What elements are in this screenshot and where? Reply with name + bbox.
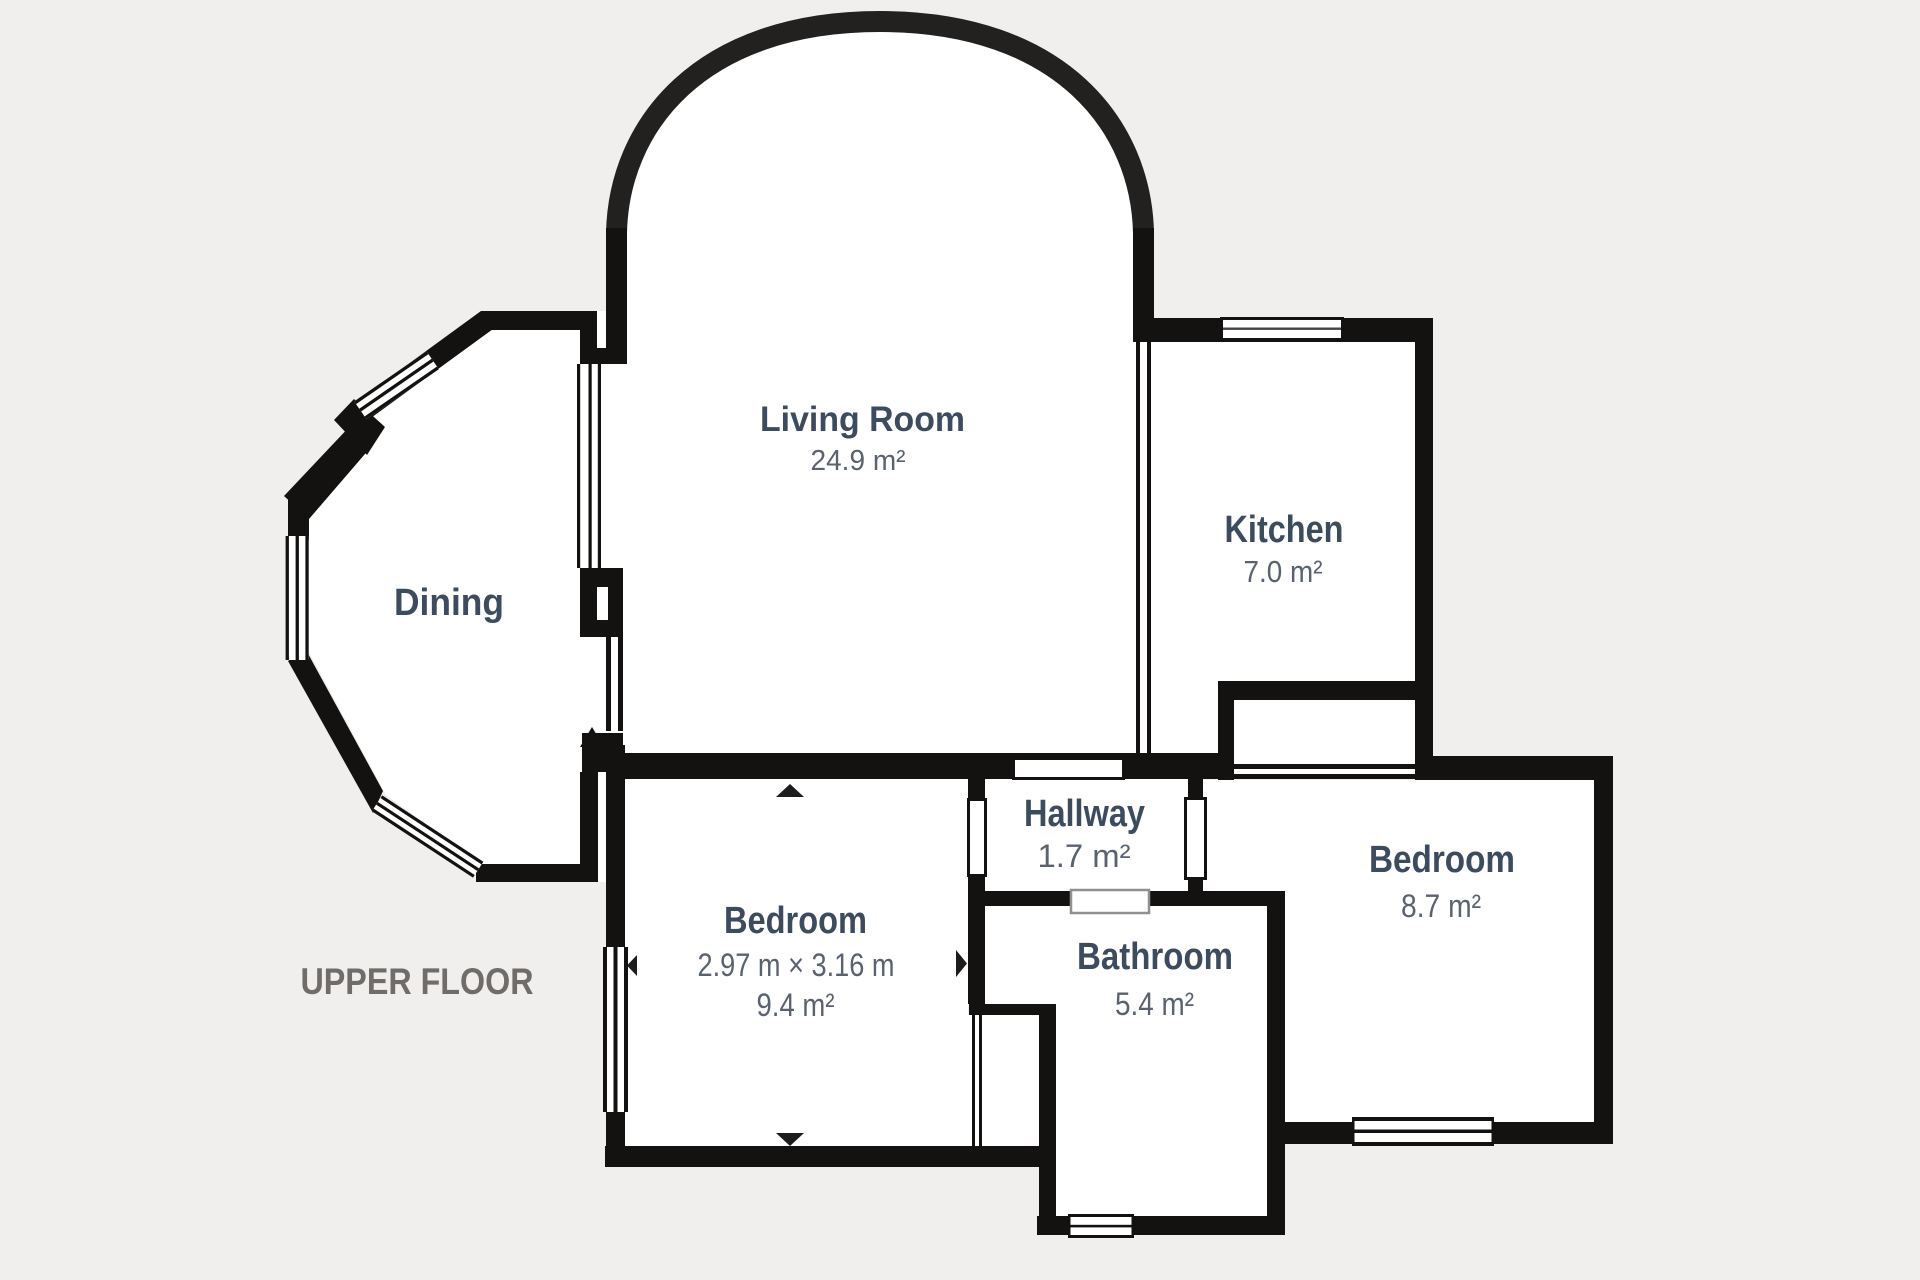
svg-text:24.9 m²: 24.9 m²	[811, 445, 906, 477]
svg-text:Hallway: Hallway	[1024, 793, 1145, 835]
svg-text:Kitchen: Kitchen	[1225, 509, 1344, 551]
svg-text:UPPER FLOOR: UPPER FLOOR	[301, 961, 534, 1002]
svg-text:Bathroom: Bathroom	[1077, 936, 1233, 978]
svg-text:7.0 m²: 7.0 m²	[1244, 554, 1323, 589]
svg-text:2.97 m × 3.16 m: 2.97 m × 3.16 m	[698, 947, 895, 983]
svg-text:Bedroom: Bedroom	[724, 900, 867, 942]
svg-text:1.7 m²: 1.7 m²	[1038, 838, 1131, 874]
svg-text:9.4 m²: 9.4 m²	[757, 987, 835, 1023]
svg-text:Dining: Dining	[394, 582, 504, 624]
svg-text:8.7 m²: 8.7 m²	[1401, 888, 1481, 924]
svg-text:Living Room: Living Room	[760, 400, 965, 439]
svg-text:Bedroom: Bedroom	[1369, 839, 1515, 881]
svg-text:5.4 m²: 5.4 m²	[1115, 986, 1194, 1022]
